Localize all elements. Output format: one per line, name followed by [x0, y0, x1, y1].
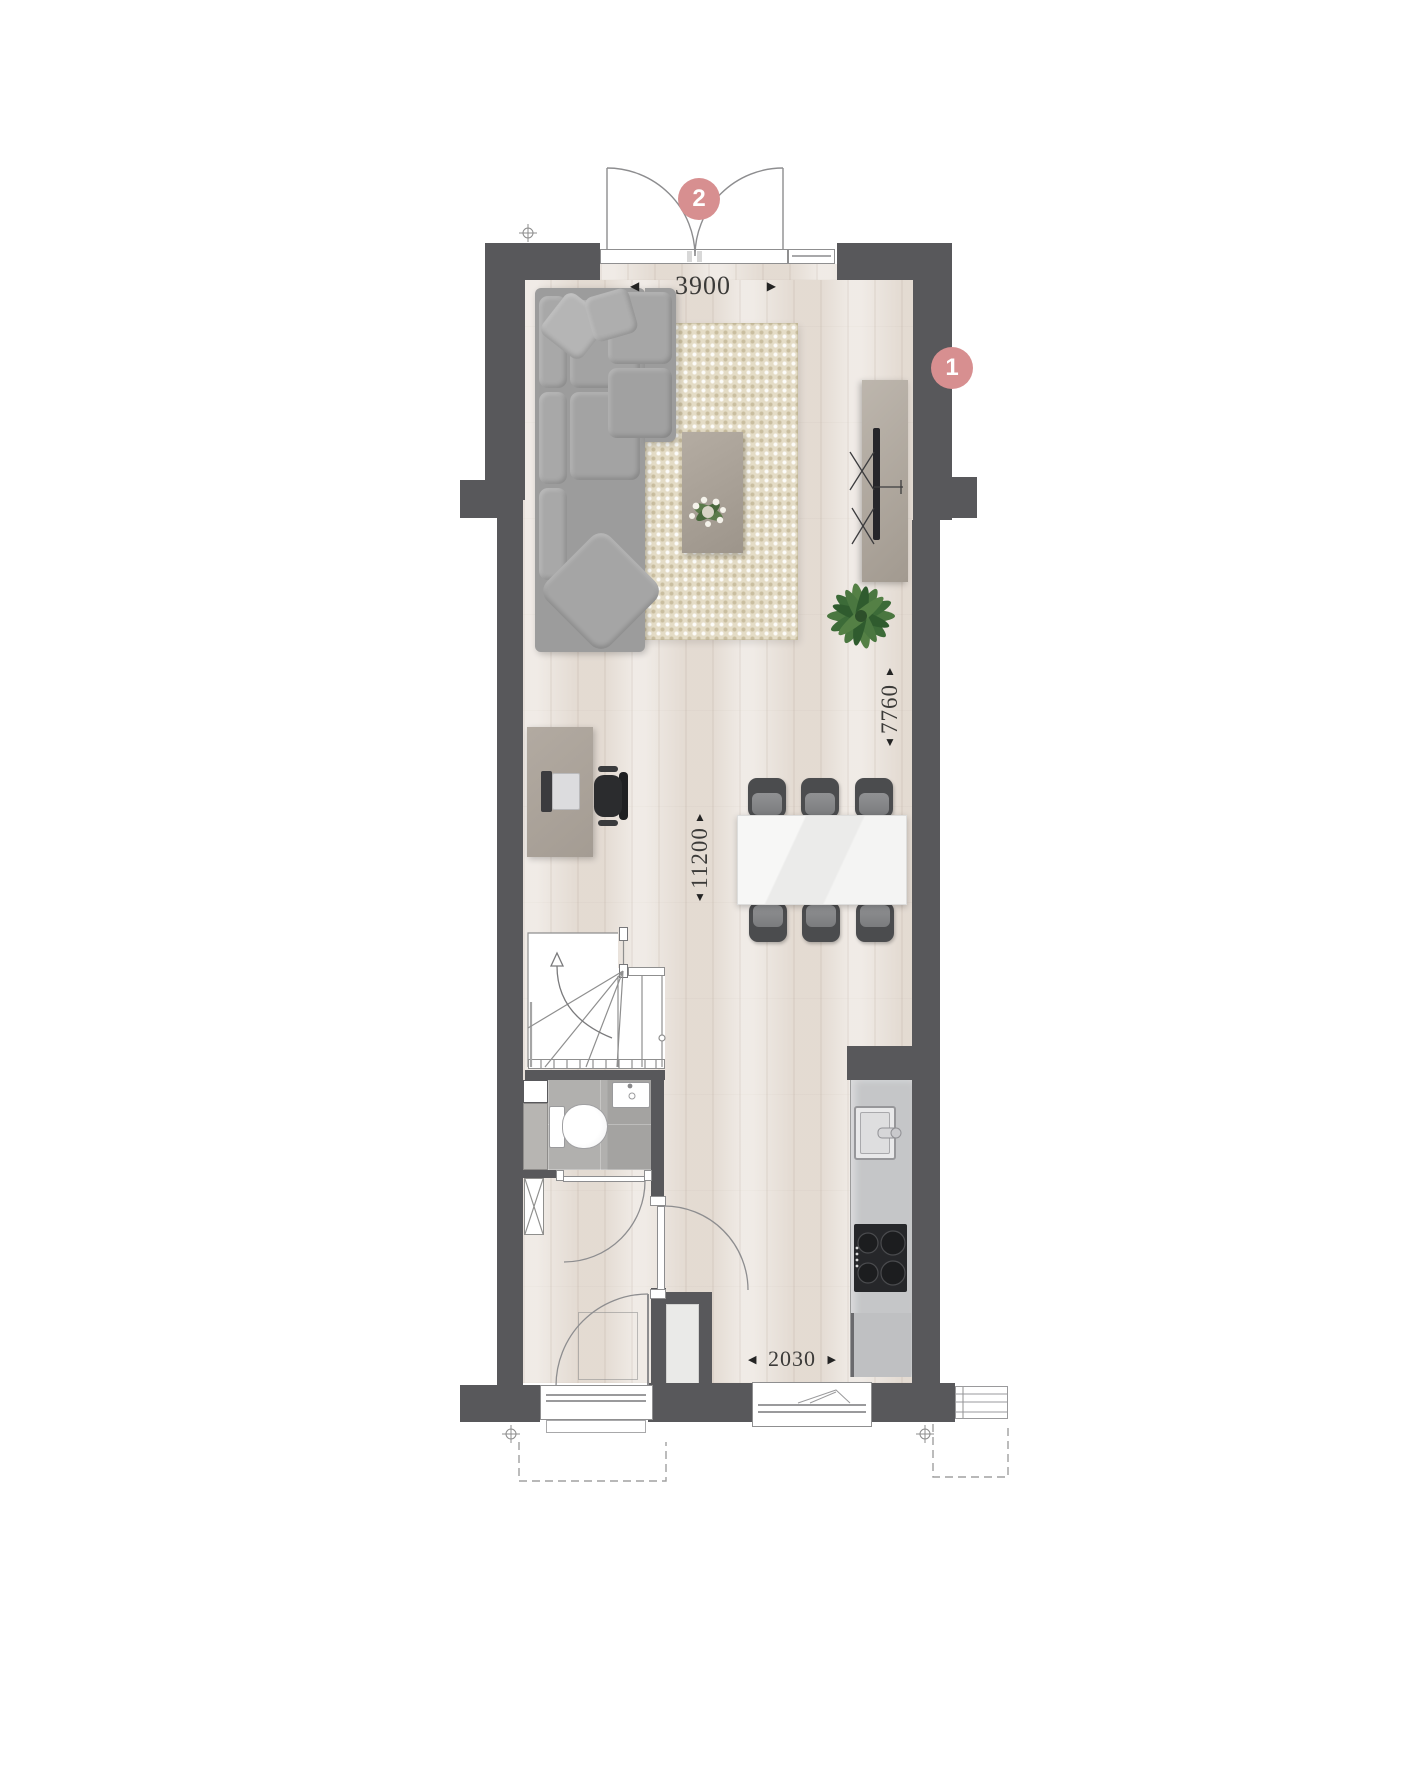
dimension-top: ◀ 3900 ▶: [630, 271, 776, 301]
kitchen-sink-basin: [860, 1112, 890, 1154]
wall-segment: [485, 243, 600, 280]
arrow-down-icon: ▼: [694, 890, 706, 904]
tv: [873, 428, 880, 540]
dimension-top-value: 3900: [675, 271, 731, 301]
sidelight-glazing-line: [792, 255, 831, 257]
dining-chair: [749, 902, 787, 942]
sofa-cushion: [608, 368, 672, 438]
stair-tread-strip: [528, 1059, 665, 1069]
duct-box: [523, 1080, 548, 1103]
cooktop: [854, 1224, 907, 1292]
meter-cabinet: [524, 1178, 544, 1235]
newel-post: [619, 964, 628, 978]
door-jamb: [687, 251, 692, 262]
arrow-left-icon: ◀: [630, 279, 639, 294]
entrance-closet-floor: [666, 1304, 699, 1385]
arrow-up-icon: ▲: [884, 664, 896, 678]
dining-chair: [748, 778, 786, 818]
arrow-down-icon: ▼: [884, 735, 896, 749]
floor-plan-canvas: ◀ 3900 ▶ ▲ 7760 ▼ ▲ 11200 ▼ ◀ 2030 ▶ 2 1: [0, 0, 1417, 1772]
dining-chair: [802, 902, 840, 942]
sofa-cushion: [539, 392, 567, 484]
door-jamb: [650, 1289, 666, 1299]
door-jamb: [644, 1170, 652, 1181]
kitchen-base-cabinet: [851, 1313, 911, 1377]
front-door-frame: [540, 1385, 653, 1420]
front-door-threshold-line: [546, 1394, 646, 1396]
newel-post: [619, 927, 628, 941]
dimension-middle-value: 11200: [687, 820, 713, 896]
wall-segment: [651, 1078, 664, 1203]
laptop-screen: [541, 771, 552, 812]
laptop-keyboard: [552, 773, 580, 810]
wall-segment: [648, 1383, 752, 1422]
wall-segment: [460, 1385, 540, 1422]
toilet-cabinet: [523, 1103, 548, 1170]
dimension-bottom: ◀ 2030 ▶: [748, 1345, 836, 1373]
toilet-door-leaf: [563, 1176, 645, 1182]
wall-segment: [651, 1288, 666, 1385]
dining-table: [737, 815, 907, 905]
wash-basin: [612, 1082, 650, 1108]
coffee-table: [682, 432, 743, 553]
wall-segment: [485, 280, 525, 500]
marker-2-badge: 2: [678, 178, 720, 220]
wall-pier: [938, 477, 977, 518]
office-chair: [594, 775, 622, 817]
wall-segment: [497, 500, 523, 1385]
staircase-lower: [618, 968, 665, 1067]
stair-railing: [628, 967, 665, 976]
arrow-left-icon: ◀: [748, 1353, 756, 1366]
wall-segment: [699, 1298, 712, 1385]
dining-chair: [801, 778, 839, 818]
window-glazing-line: [758, 1404, 866, 1406]
marker-1-badge: 1: [931, 347, 973, 389]
wall-segment: [523, 1170, 558, 1178]
dimension-right-value: 7760: [877, 677, 903, 741]
arrow-right-icon: ▶: [767, 279, 776, 294]
neighbour-door-frame: [955, 1386, 1008, 1419]
dimension-bottom-value: 2030: [768, 1346, 816, 1372]
wall-segment: [847, 1046, 912, 1080]
dining-chair: [856, 902, 894, 942]
wall-segment: [872, 1383, 955, 1422]
interior-door-leaf: [657, 1206, 665, 1290]
wall-segment: [525, 1070, 665, 1080]
arrow-right-icon: ▶: [828, 1353, 836, 1366]
dining-chair: [855, 778, 893, 818]
wall-segment: [912, 520, 940, 1383]
door-jamb: [697, 251, 702, 262]
window-glazing-line: [758, 1411, 866, 1413]
wall-segment: [837, 243, 952, 280]
tv-cabinet: [862, 380, 908, 582]
staircase: [528, 933, 618, 1067]
toilet-bowl: [562, 1104, 608, 1149]
office-chair-armrest: [598, 820, 618, 826]
door-jamb: [650, 1196, 666, 1206]
front-door-threshold-line: [546, 1400, 646, 1402]
entrance-step: [546, 1420, 646, 1433]
office-chair-armrest: [598, 766, 618, 772]
doormat: [578, 1312, 638, 1380]
rear-french-doors-frame: [600, 249, 788, 264]
